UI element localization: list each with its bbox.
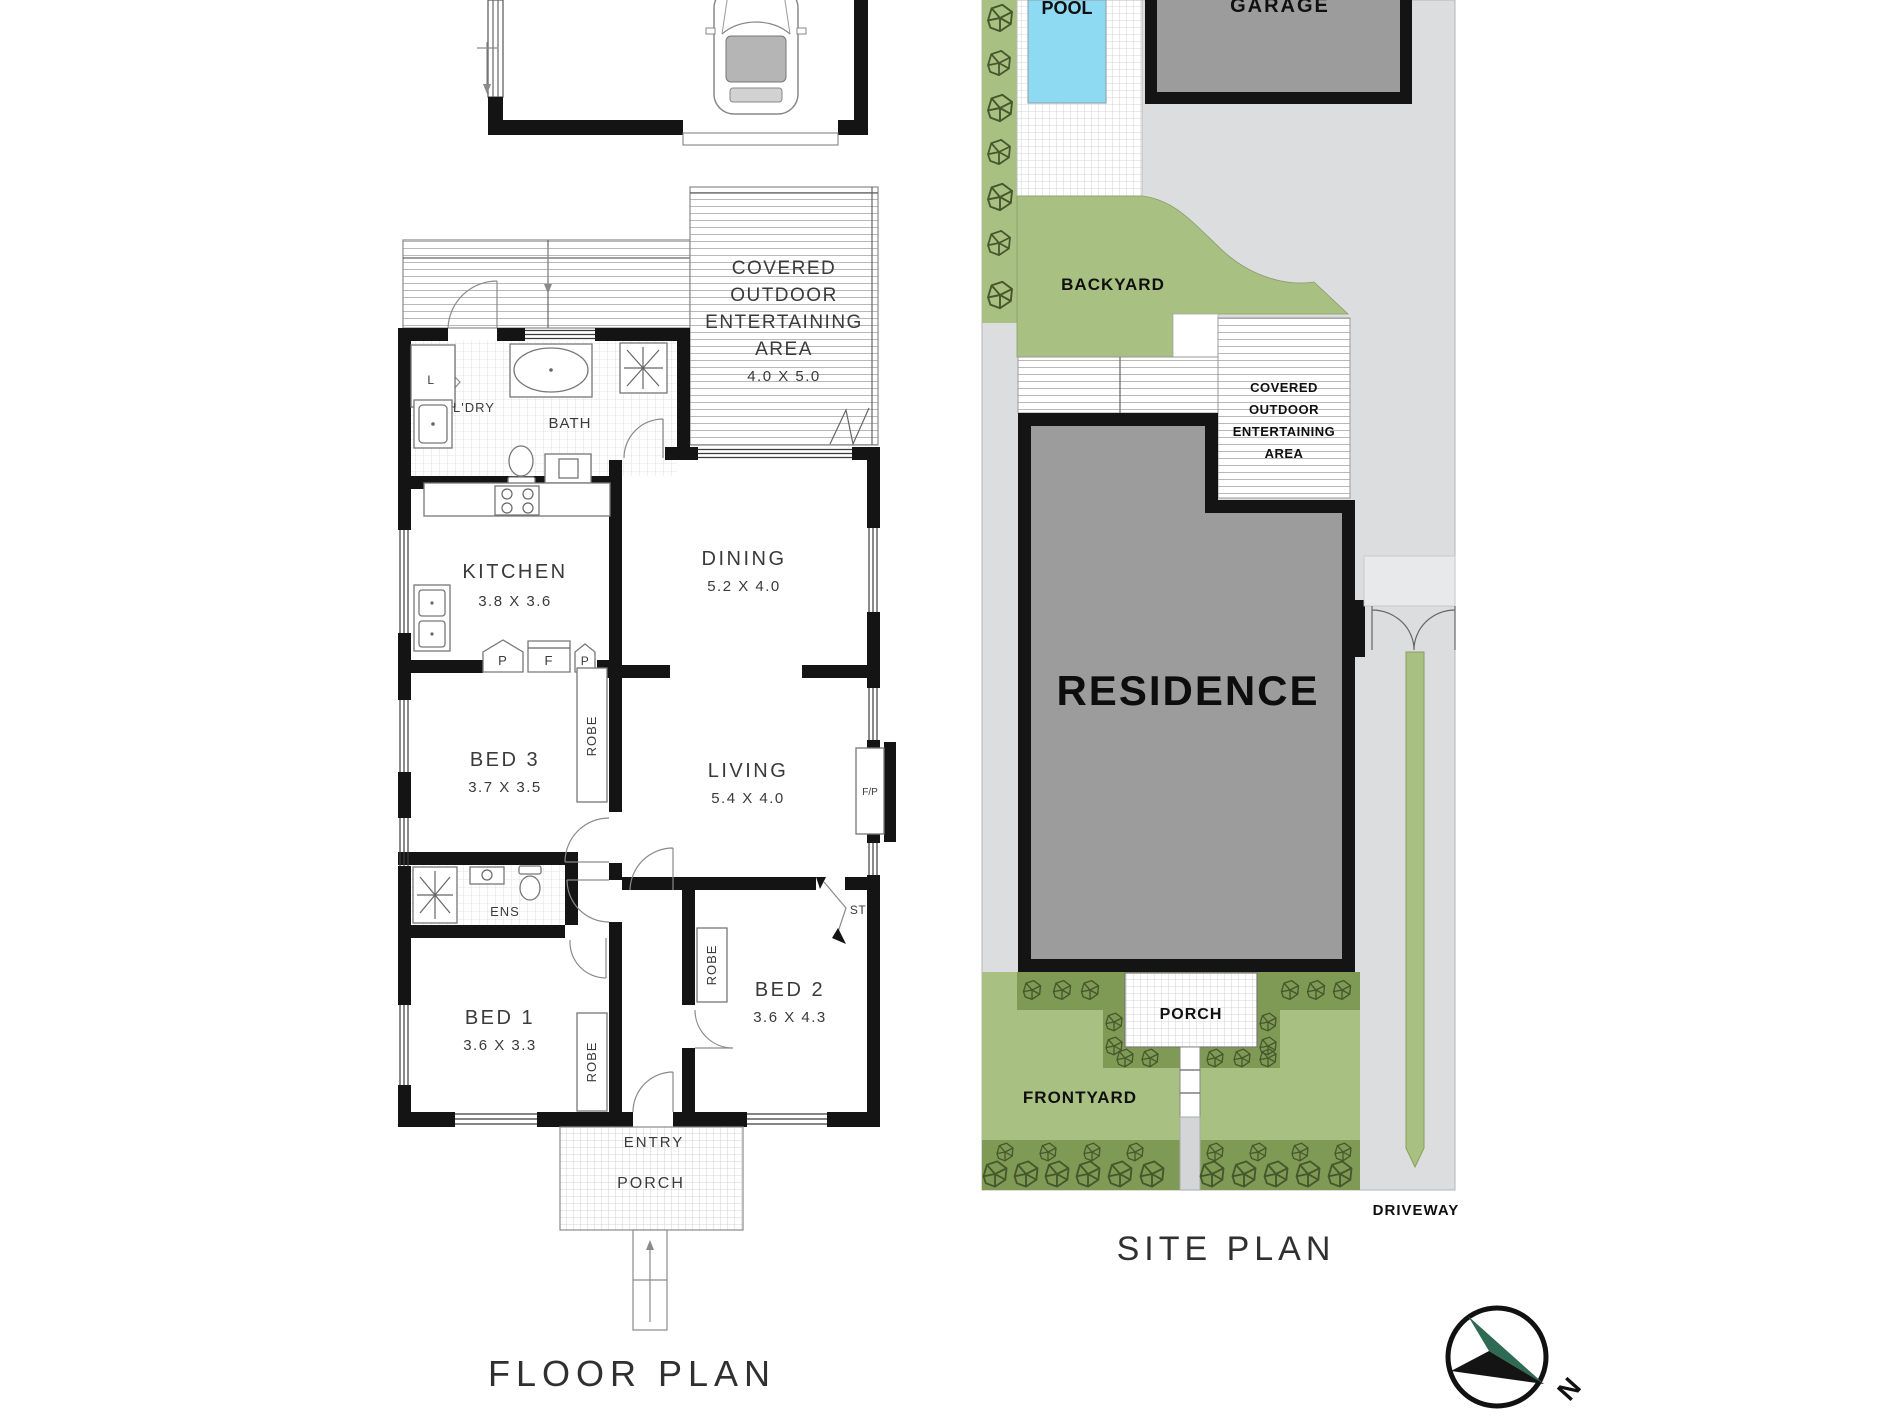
pool-label: POOL [1041,0,1092,18]
driveway-strip [1406,652,1424,1167]
bath-toilet [508,446,535,486]
porch-site-label: PORCH [1160,1006,1223,1023]
site-plan-title: SITE PLAN [1117,1230,1336,1268]
residence-label: RESIDENCE [1056,667,1319,714]
floor-plan: COVERED OUTDOOR ENTERTAINING AREA 4.0 X … [398,0,896,1394]
site-covered-line-4: AREA [1265,446,1304,461]
kitchen-dims: 3.8 X 3.6 [478,593,552,610]
garage-walls [488,0,868,135]
porch-path [1180,1047,1200,1190]
bath-label: BATH [549,415,592,432]
kitchen-sink [414,585,450,651]
covered-dims: 4.0 X 5.0 [747,368,821,385]
driveway-label: DRIVEWAY [1373,1202,1460,1219]
entry-porch: ENTRY PORCH [560,1127,743,1330]
fridge-label: F [545,653,554,668]
floor-plan-title: FLOOR PLAN [488,1353,776,1394]
pantry2-label: P [581,654,590,668]
kitchen-bench [424,483,610,516]
garage-label: GARAGE [1230,0,1330,17]
robe-bed1-label: ROBE [584,1042,599,1083]
bath-shower [620,343,667,393]
bed3-dims: 3.7 X 3.5 [468,779,542,796]
store-label: ST [850,903,867,917]
bed1-dims: 3.6 X 3.3 [463,1037,537,1054]
site-covered-line-3: ENTERTAINING [1233,424,1336,439]
bed3-label: BED 3 [470,749,540,771]
residence-wall-step [1355,600,1365,657]
living-label: LIVING [708,760,789,782]
dining-label: DINING [702,548,787,570]
robe-bed2-label: ROBE [704,945,719,986]
dining-dims: 5.2 X 4.0 [707,578,781,595]
compass-icon: N [1448,1308,1587,1406]
covered-line-2: OUTDOOR [730,285,838,306]
linen-label: L [427,373,434,387]
plan-canvas: COVERED OUTDOOR ENTERTAINING AREA 4.0 X … [0,0,1900,1425]
bed2-label: BED 2 [755,979,825,1001]
deck-notch [1173,314,1218,357]
covered-line-4: AREA [755,339,813,360]
bed1-label: BED 1 [465,1007,535,1029]
kitchen-label: KITCHEN [462,561,567,583]
ens-toilet [519,866,541,900]
front-path [633,1230,667,1330]
back-deck [1018,357,1220,413]
covered-line-1: COVERED [732,258,836,279]
pantry1-label: P [498,653,508,668]
covered-outdoor-area: COVERED OUTDOOR ENTERTAINING AREA 4.0 X … [690,187,878,445]
site-plan: POOL GARAGE BACKYARD COVERED OUTDOOR ENT… [982,0,1459,1268]
north-label: N [1552,1372,1587,1407]
ens-shower [413,867,457,923]
garage-opening [683,133,838,145]
site-covered-line-1: COVERED [1250,380,1318,395]
ens-vanity [470,867,504,884]
ens-label: ENS [490,904,520,919]
laundry-label: L'DRY [453,400,495,415]
frontyard-label: FRONTYARD [1023,1088,1137,1107]
fireplace-label: F/P [862,787,878,798]
garage-structure [477,0,868,145]
car-icon [706,0,806,114]
robe-bed3-label: ROBE [584,716,599,757]
site-covered-line-2: OUTDOOR [1249,402,1319,417]
covered-line-3: ENTERTAINING [705,312,863,333]
living-dims: 5.4 X 4.0 [711,790,785,807]
gate-crossing [1364,556,1455,606]
bath-vanity [545,454,591,483]
covered-outdoor-area-site: COVERED OUTDOOR ENTERTAINING AREA [1218,318,1350,498]
rear-deck [403,240,690,328]
backyard-label: BACKYARD [1061,275,1165,294]
bed2-dims: 3.6 X 4.3 [753,1009,827,1026]
porch-label: PORCH [617,1175,685,1192]
entry-label: ENTRY [624,1134,685,1151]
